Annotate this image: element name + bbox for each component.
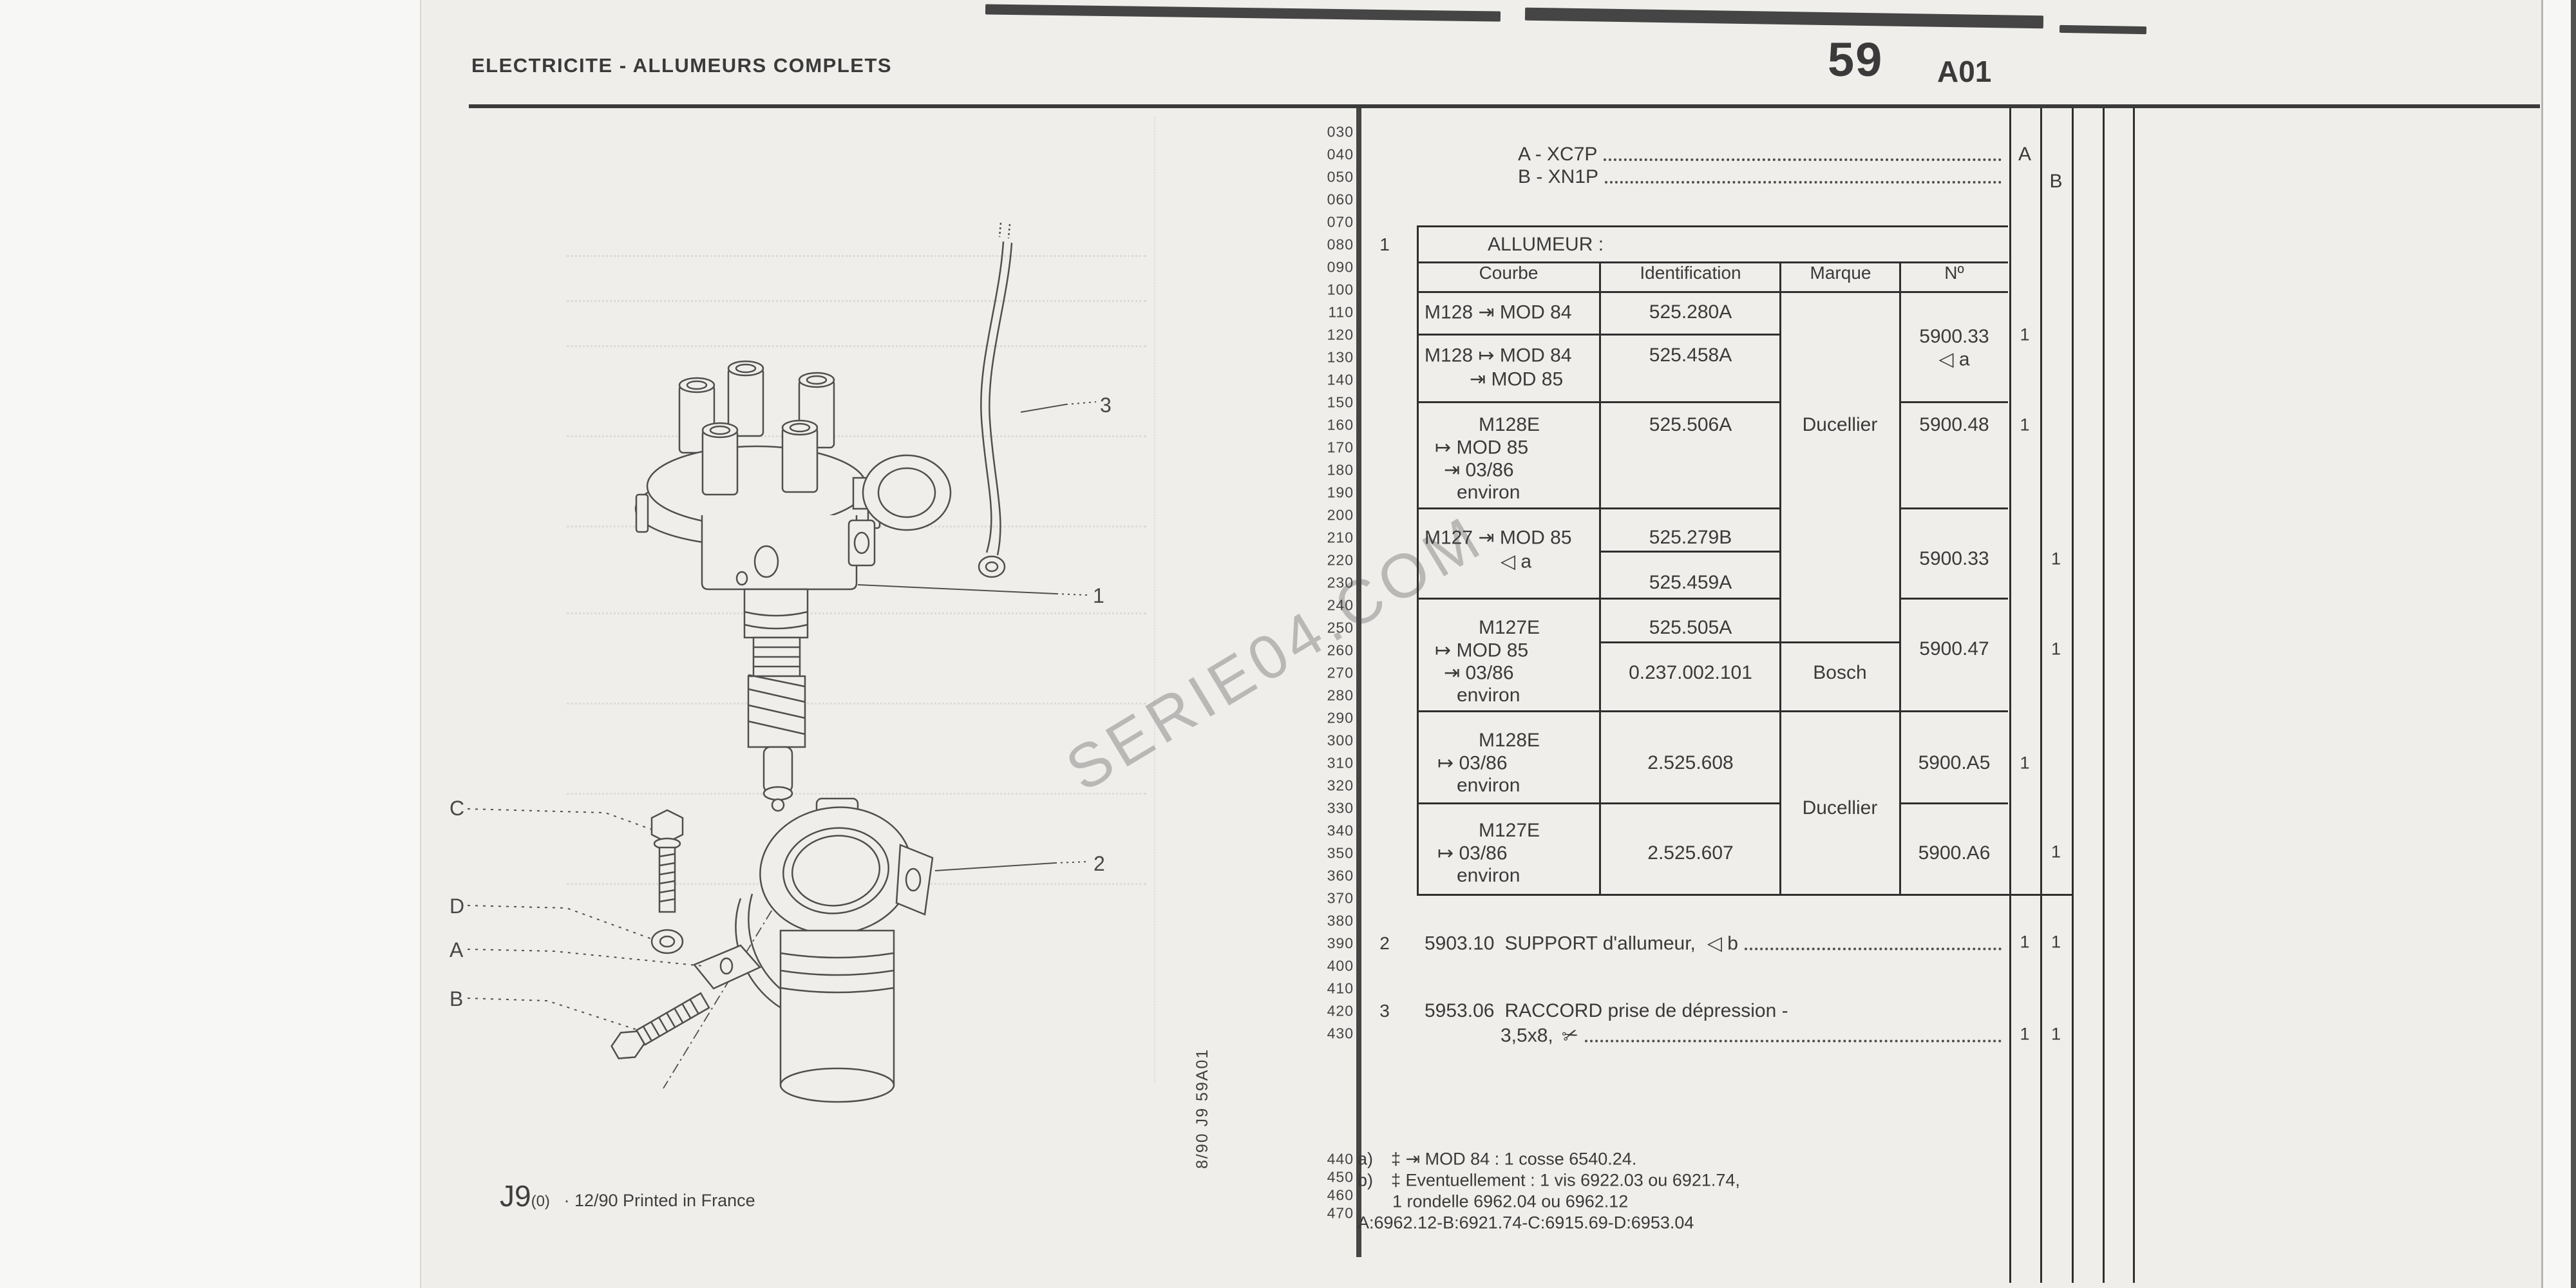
box-line — [1417, 598, 1781, 600]
gutter-row-number: 330 — [1319, 800, 1354, 817]
identification-value: 525.458A — [1600, 345, 1781, 366]
gutter-row-number: 370 — [1319, 890, 1354, 907]
gutter-row-number: 350 — [1319, 845, 1354, 862]
courbe-line: M128 ⇥ MOD 84 — [1425, 301, 1572, 324]
col-header-num: Nº — [1900, 263, 2008, 283]
diagram-label-3: 3 — [1100, 393, 1112, 417]
box-line — [1417, 291, 2008, 293]
diagram-label-2: 2 — [1094, 852, 1105, 875]
gutter-row-number: 280 — [1319, 687, 1354, 705]
gutter-row-number: 430 — [1319, 1025, 1354, 1043]
qty-col-header-a: A — [2009, 144, 2040, 166]
courbe-line: M127E — [1479, 617, 1540, 639]
gutter-row-number: 180 — [1319, 462, 1354, 479]
gutter-row-number: 310 — [1319, 755, 1354, 772]
qty-b: 1 — [2040, 1025, 2072, 1045]
qty-a: 1 — [2009, 325, 2040, 345]
gutter-row-number: 450 — [1319, 1169, 1354, 1186]
gutter-row-number: 390 — [1319, 935, 1354, 952]
courbe-line: environ — [1457, 685, 1520, 706]
box-line — [1899, 802, 2008, 804]
courbe-line: ↦ 03/86 — [1437, 752, 1508, 775]
header-rule — [469, 104, 2540, 108]
courbe-line: environ — [1457, 865, 1520, 887]
qty-col-line — [2072, 108, 2074, 1283]
courbe-line: environ — [1457, 482, 1520, 504]
box-line — [1899, 507, 2008, 509]
item-2-row: 5903.10 SUPPORT d'allumeur, ◁ b — [1425, 933, 2003, 955]
plate-a — [694, 945, 760, 989]
part-number: 5900.A5 — [1900, 752, 2008, 774]
courbe-line: M128 ↦ MOD 84 — [1425, 345, 1572, 367]
catalog-page: ELECTRICITE - ALLUMEURS COMPLETS 59 A01 … — [0, 0, 2576, 1288]
qty-a: 1 — [2009, 933, 2040, 952]
identification-value: 525.280A — [1600, 301, 1781, 323]
note-b-text: ‡ Eventuellement : 1 vis 6922.03 ou 6921… — [1391, 1171, 1740, 1190]
diagram-label-d: D — [450, 895, 464, 918]
courbe-line: M128E — [1479, 414, 1540, 436]
gutter-row-number: 290 — [1319, 710, 1354, 727]
gutter-row-number: 440 — [1319, 1151, 1354, 1168]
gutter-row-number: 090 — [1319, 259, 1354, 276]
leader-dots — [1604, 158, 2002, 161]
box-line — [1899, 598, 2008, 600]
leader-dots — [1745, 947, 2002, 951]
col-header-marque: Marque — [1781, 263, 1900, 283]
note-a: a)‡ ⇥ MOD 84 : 1 cosse 6540.24. — [1358, 1150, 1636, 1170]
col-header-courbe: Courbe — [1417, 263, 1600, 283]
qty-b: 1 — [2040, 842, 2072, 862]
item-3-ref: 5953.06 — [1425, 1000, 1494, 1022]
gutter-row-number: 140 — [1319, 372, 1354, 389]
variant-row-b: B - XN1P — [1518, 166, 2003, 188]
leader-line-b — [468, 998, 639, 1030]
box-line — [1417, 401, 1781, 403]
note-line-4: A:6962.12-B:6921.74-C:6915.69-D:6953.04 — [1358, 1213, 1694, 1233]
qty-col-line — [2133, 108, 2135, 1283]
page-code: A01 — [1937, 54, 1991, 89]
box-line — [1417, 507, 1781, 509]
identification-value: 525.506A — [1600, 414, 1781, 436]
courbe-line: ⇥ MOD 85 — [1470, 368, 1563, 391]
note-a-prefix: a) — [1358, 1150, 1391, 1170]
qty-col-line — [2009, 108, 2011, 1283]
gutter-row-number: 110 — [1319, 304, 1354, 321]
leader-line-1-dotted — [1056, 594, 1087, 595]
gutter-row-number: 230 — [1319, 574, 1354, 592]
note-a-text: ‡ ⇥ MOD 84 : 1 cosse 6540.24. — [1391, 1150, 1636, 1169]
item-number: 2 — [1369, 933, 1400, 954]
identification-value: 2.525.608 — [1600, 752, 1781, 774]
leader-line-2 — [935, 863, 1055, 871]
leader-dots — [1585, 1039, 2002, 1043]
table-border-left — [1356, 108, 1361, 1257]
side-reference-code: 8/90 J9 59A01 — [1193, 1048, 1212, 1169]
vacuum-hose — [979, 223, 1012, 577]
courbe-line: M127 ⇥ MOD 85 — [1425, 527, 1572, 549]
diagram-label-a: A — [450, 938, 464, 961]
gutter-row-number: 210 — [1319, 529, 1354, 547]
variant-b-label: B - XN1P — [1518, 166, 1598, 188]
part-number: 5900.33 — [1900, 326, 2008, 348]
scan-artifact-bar — [2060, 25, 2146, 34]
item-3-size: 3,5x8, — [1501, 1025, 1553, 1047]
gutter-row-number: 470 — [1319, 1205, 1354, 1222]
box-line — [1417, 894, 2072, 896]
variant-a-label: A - XC7P — [1518, 144, 1597, 166]
gutter-row-number: 270 — [1319, 665, 1354, 682]
leader-line-1 — [858, 585, 1056, 594]
item-3-row-2: 3,5x8, ✂ — [1501, 1025, 2003, 1047]
courbe-line: ↦ 03/86 — [1437, 842, 1508, 865]
marque-value: Bosch — [1781, 662, 1899, 684]
part-number: 5900.A6 — [1900, 842, 2008, 864]
leader-line-3 — [1021, 404, 1066, 412]
gutter-row-number: 070 — [1319, 214, 1354, 231]
gutter-row-number: 040 — [1319, 146, 1354, 164]
leader-line-c — [468, 809, 652, 829]
drive-shaft — [744, 589, 808, 811]
courbe-line: ⇥ 03/86 — [1444, 459, 1514, 482]
box-line — [1417, 334, 1781, 336]
gutter-row-number: 340 — [1319, 822, 1354, 840]
qty-a: 1 — [2009, 753, 2040, 773]
qty-b: 1 — [2040, 549, 2072, 569]
gutter-row-number: 160 — [1319, 417, 1354, 434]
see-note-symbol: ◁ a — [1900, 348, 2008, 371]
courbe-line: ↦ MOD 85 — [1435, 437, 1528, 459]
gutter-row-number: 100 — [1319, 281, 1354, 299]
note-b-prefix: b) — [1358, 1171, 1391, 1191]
gutter-row-number: 050 — [1319, 169, 1354, 186]
footer-rev: (0) — [531, 1193, 550, 1210]
page-number: 59 — [1828, 32, 1883, 87]
washer-d — [652, 930, 683, 953]
box-line — [1899, 401, 2008, 403]
bolt-c — [652, 810, 683, 912]
item-number: 1 — [1369, 234, 1400, 255]
identification-value: 525.459A — [1600, 572, 1781, 594]
item-3-name: RACCORD prise de dépression - — [1504, 1000, 1788, 1022]
qty-col-header-b: B — [2040, 171, 2072, 193]
gutter-row-number: 400 — [1319, 958, 1354, 975]
gutter-row-number: 250 — [1319, 620, 1354, 637]
courbe-line: ⇥ 03/86 — [1444, 662, 1514, 685]
support-clamp — [735, 798, 933, 1102]
diagram-label-c: C — [450, 797, 464, 820]
page-title: ELECTRICITE - ALLUMEURS COMPLETS — [471, 54, 892, 77]
note-b: b)‡ Eventuellement : 1 vis 6922.03 ou 69… — [1358, 1171, 1740, 1191]
gutter-row-number: 300 — [1319, 732, 1354, 750]
identification-value: 525.279B — [1600, 527, 1781, 549]
identification-value: 2.525.607 — [1600, 842, 1781, 864]
gutter-row-number: 360 — [1319, 867, 1354, 885]
qty-col-line — [2040, 108, 2042, 1283]
gutter-row-number: 130 — [1319, 349, 1354, 366]
gutter-row-number: 460 — [1319, 1187, 1354, 1204]
scissors-icon: ✂ — [1559, 1022, 1582, 1048]
identification-value: 525.505A — [1600, 617, 1781, 639]
gutter-row-number: 060 — [1319, 191, 1354, 209]
footer-code: J9 — [500, 1179, 531, 1213]
footer-text: · 12/90 Printed in France — [563, 1191, 755, 1210]
part-number: 5900.33 — [1900, 548, 2008, 570]
diagram-label-b: B — [450, 987, 463, 1010]
gutter-row-number: 200 — [1319, 507, 1354, 524]
gutter-row-number: 240 — [1319, 597, 1354, 614]
marque-value: Ducellier — [1781, 414, 1899, 436]
gutter-row-number: 120 — [1319, 327, 1354, 344]
col-header-identification: Identification — [1600, 263, 1781, 283]
marque-value: Ducellier — [1781, 797, 1899, 819]
leader-line-2-dotted — [1055, 862, 1088, 863]
box-line — [1417, 225, 1419, 895]
gutter-row-number: 380 — [1319, 913, 1354, 930]
allumeur-title: ALLUMEUR : — [1488, 234, 1604, 256]
gutter-row-number: 190 — [1319, 484, 1354, 502]
page-right-edge — [2541, 0, 2543, 1288]
gutter-row-number: 080 — [1319, 236, 1354, 254]
gutter-row-number: 420 — [1319, 1003, 1354, 1020]
gutter-row-number: 410 — [1319, 980, 1354, 998]
courbe-line: M128E — [1479, 730, 1540, 752]
print-footer: J9(0) · 12/90 Printed in France — [500, 1179, 755, 1213]
diagram-label-1: 1 — [1093, 584, 1104, 607]
item-2-ref: 5903.10 — [1425, 933, 1494, 955]
see-note-symbol: ◁ b — [1707, 933, 1738, 955]
part-number: 5900.48 — [1900, 414, 2008, 436]
variant-row-a: A - XC7P — [1518, 144, 2003, 166]
qty-col-line — [2103, 108, 2105, 1283]
scan-edge-strip — [2571, 0, 2576, 1288]
qty-b: 1 — [2040, 933, 2072, 952]
distributor-diagram: 3 1 2 C D A B — [399, 213, 1159, 1114]
gutter-row-number: 030 — [1319, 124, 1354, 141]
distributor-body — [702, 515, 875, 589]
box-line — [1417, 710, 2008, 712]
box-line — [1599, 641, 1900, 643]
gutter-row-number: 150 — [1319, 394, 1354, 412]
box-line — [1417, 802, 1781, 804]
item-3-row: 5953.06 RACCORD prise de dépression - — [1425, 1000, 1914, 1022]
leader-dots — [1605, 180, 2002, 184]
part-number: 5900.47 — [1900, 638, 2008, 660]
gutter-row-number: 220 — [1319, 552, 1354, 569]
box-line — [1599, 551, 1781, 553]
bolt-b — [608, 988, 712, 1065]
qty-a: 1 — [2009, 1025, 2040, 1045]
courbe-line: ◁ a — [1501, 551, 1531, 573]
qty-a: 1 — [2009, 415, 2040, 435]
leader-line-3-dotted — [1066, 402, 1096, 404]
gutter-row-number: 320 — [1319, 777, 1354, 795]
courbe-line: M127E — [1479, 820, 1540, 842]
box-line — [1417, 225, 2008, 227]
qty-b: 1 — [2040, 639, 2072, 659]
leader-line-d — [468, 905, 652, 939]
gutter-row-number: 260 — [1319, 642, 1354, 659]
note-line-3: 1 rondelle 6962.04 ou 6962.12 — [1392, 1192, 1628, 1212]
item-number: 3 — [1369, 1001, 1400, 1021]
gutter-row-number: 170 — [1319, 439, 1354, 457]
courbe-line: ↦ MOD 85 — [1435, 639, 1528, 662]
item-2-name: SUPPORT d'allumeur, — [1504, 933, 1695, 955]
courbe-line: environ — [1457, 775, 1520, 797]
identification-value: 0.237.002.101 — [1600, 662, 1781, 684]
